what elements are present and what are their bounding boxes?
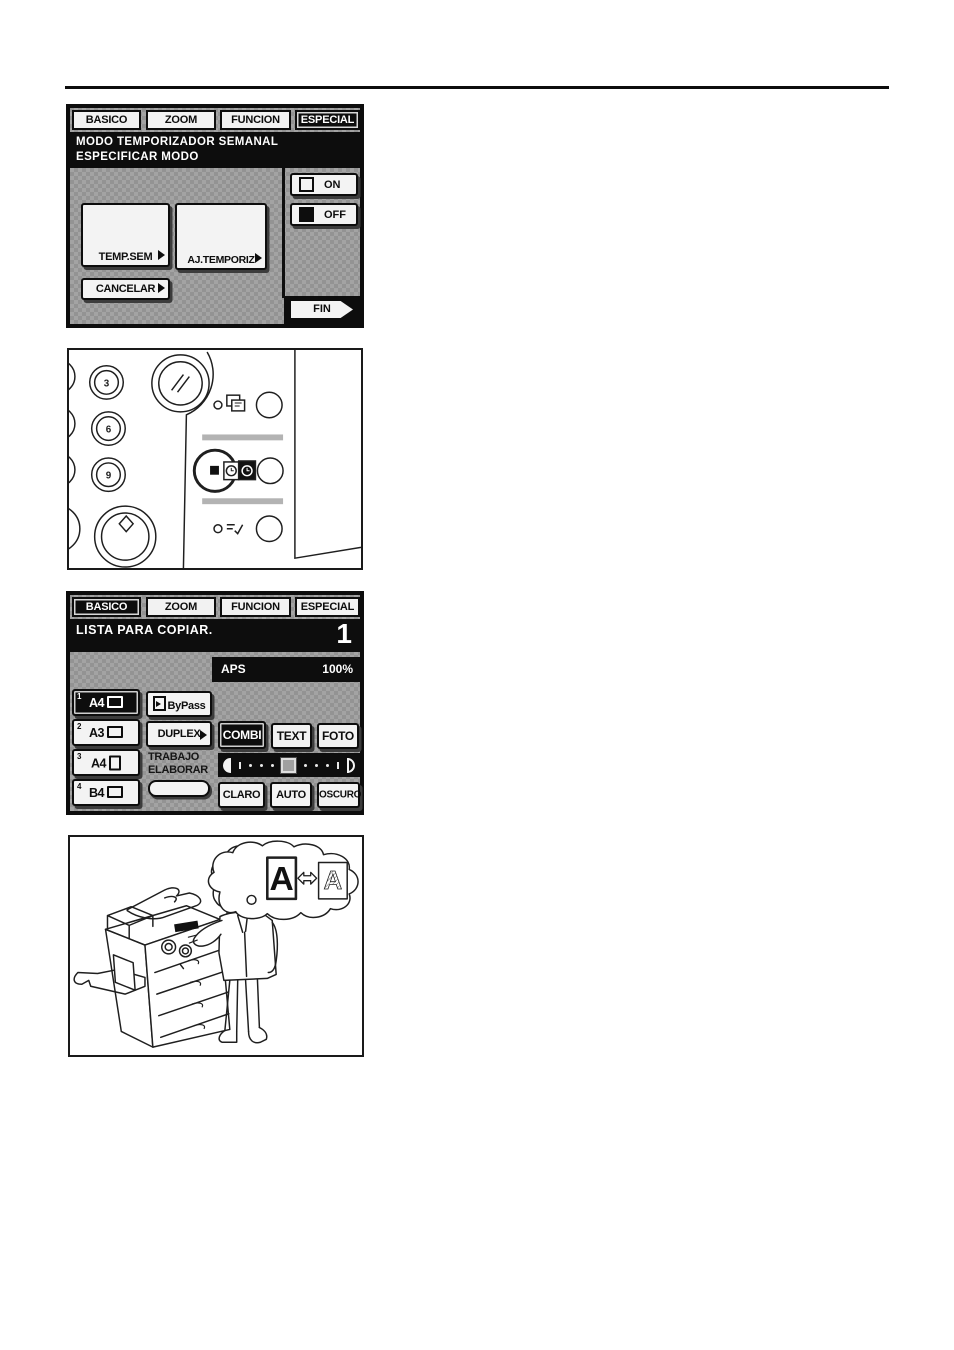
off-label: OFF xyxy=(324,209,346,221)
text-button: TEXT xyxy=(271,723,312,749)
tab-funcion: FUNCION xyxy=(220,597,291,617)
bypass-content: ByPass xyxy=(148,696,210,712)
header-rule xyxy=(65,86,889,89)
arrow-icon xyxy=(158,250,170,260)
arrow-icon xyxy=(158,283,170,293)
paper-portrait-icon xyxy=(109,755,121,770)
foto-label: FOTO xyxy=(319,729,357,743)
trabajo-line2: ELABORAR xyxy=(148,764,214,777)
tab-especial: ESPECIAL xyxy=(295,597,360,617)
message-bar: MODO TEMPORIZADOR SEMANAL ESPECIFICAR MO… xyxy=(70,132,360,168)
interrupt-key xyxy=(256,392,282,418)
bypass-button: ByPass xyxy=(146,691,212,717)
start-key xyxy=(95,506,156,567)
copy-count: 1 xyxy=(336,618,352,650)
figure-lcd-copy-screen: BASICO ZOOM FUNCION ESPECIAL LISTA PARA … xyxy=(66,591,364,815)
status-bar: LISTA PARA COPIAR. 1 xyxy=(70,619,360,652)
dot xyxy=(304,764,307,767)
fin-strip: FIN xyxy=(284,296,360,324)
bypass-icon xyxy=(153,696,166,711)
paper-landscape-icon xyxy=(107,726,123,738)
aps-label: APS xyxy=(221,657,246,682)
timer-led-icon xyxy=(210,466,219,475)
dot xyxy=(271,764,274,767)
clear-all-icon xyxy=(172,375,190,393)
energy-saver-icon xyxy=(227,525,243,534)
keypad-digit: 9 xyxy=(106,471,112,482)
tray-button-4: 4 B4 xyxy=(72,779,140,806)
bubble-letter-small: A xyxy=(324,867,343,895)
combi-button: COMBI xyxy=(218,721,266,749)
weekly-timer-icon xyxy=(239,461,256,480)
timer-icon xyxy=(224,462,239,480)
trabajo-slot-button xyxy=(148,780,210,797)
tab-zoom: ZOOM xyxy=(146,110,216,130)
keypad-digit: 6 xyxy=(106,425,112,436)
led-icon xyxy=(214,525,222,533)
checkbox-filled-icon xyxy=(299,207,314,222)
fin-label: FIN xyxy=(291,301,353,318)
paper-landscape-icon xyxy=(107,696,123,708)
zoom-value: 100% xyxy=(322,657,353,682)
arrow-icon xyxy=(255,253,267,263)
tray-button-3: 3 A4 xyxy=(72,749,140,776)
message-line2: ESPECIFICAR MODO xyxy=(76,150,354,165)
weekly-timer-key xyxy=(257,458,283,484)
foto-button: FOTO xyxy=(317,723,359,749)
density-knob xyxy=(281,758,296,773)
dot xyxy=(260,764,263,767)
off-button: OFF xyxy=(290,203,358,226)
tray-size: A3 xyxy=(74,726,138,740)
led-icon xyxy=(214,401,222,409)
combi-label: COMBI xyxy=(220,728,264,742)
tray-size: A4 xyxy=(74,696,138,710)
tab-zoom: ZOOM xyxy=(146,597,216,617)
aj-temporiz-label: AJ.TEMPORIZ xyxy=(177,254,265,266)
figure-copier-illustration: A A xyxy=(68,835,364,1057)
light-half-circle-icon xyxy=(223,758,231,773)
arrow-icon xyxy=(200,730,212,740)
energy-saver-key xyxy=(256,516,282,542)
on-button: ON xyxy=(290,173,358,196)
oscuro-button: OSCURO xyxy=(317,782,360,808)
message-line1: MODO TEMPORIZADOR SEMANAL xyxy=(76,135,354,150)
dot xyxy=(326,764,329,767)
auto-label: AUTO xyxy=(272,789,310,801)
claro-button: CLARO xyxy=(218,782,265,808)
tick xyxy=(239,762,241,769)
copier-illustration-drawing: A A xyxy=(70,837,362,1055)
text-label: TEXT xyxy=(273,729,310,743)
panel-divider xyxy=(282,168,285,298)
control-panel-drawing: 3 6 9 xyxy=(69,350,361,568)
tray-button-1: 1 A4 xyxy=(72,689,140,716)
on-label: ON xyxy=(324,179,341,191)
tab-basico: BASICO xyxy=(72,110,141,130)
trabajo-label: TRABAJO ELABORAR xyxy=(148,751,214,777)
interrupt-icon xyxy=(227,395,245,411)
tab-funcion: FUNCION xyxy=(220,110,291,130)
dark-half-circle-icon xyxy=(347,758,355,773)
temp-sem-label: TEMP.SEM xyxy=(83,251,168,263)
tray-size: B4 xyxy=(74,786,138,800)
figure-lcd-weekly-timer: BASICO ZOOM FUNCION ESPECIAL MODO TEMPOR… xyxy=(66,104,364,328)
status-text: LISTA PARA COPIAR. xyxy=(76,623,213,637)
paper-landscape-icon xyxy=(107,786,123,798)
claro-label: CLARO xyxy=(220,789,263,801)
cancelar-button: CANCELAR xyxy=(81,278,170,300)
auto-button: AUTO xyxy=(270,782,312,808)
start-icon xyxy=(119,516,133,532)
density-slider xyxy=(218,753,360,777)
trabajo-line1: TRABAJO xyxy=(148,751,214,764)
bubble-letter-large: A xyxy=(269,861,293,898)
clear-all-key xyxy=(152,355,209,412)
dot xyxy=(249,764,252,767)
temp-sem-button: TEMP.SEM xyxy=(81,203,170,267)
duplex-button: DUPLEX xyxy=(146,721,212,747)
tray-button-2: 2 A3 xyxy=(72,719,140,746)
tick xyxy=(337,762,339,769)
copier-drawing xyxy=(74,888,230,1047)
tab-especial: ESPECIAL xyxy=(295,110,360,130)
aj-temporiz-button: AJ.TEMPORIZ xyxy=(175,203,267,270)
tray-size: A4 xyxy=(74,755,138,770)
aps-bar: APS 100% xyxy=(212,657,360,682)
figure-control-panel: 3 6 9 xyxy=(67,348,363,570)
oscuro-label: OSCURO xyxy=(319,790,358,801)
manual-page: BASICO ZOOM FUNCION ESPECIAL MODO TEMPOR… xyxy=(0,0,954,1350)
cancelar-label: CANCELAR xyxy=(83,283,168,295)
fin-button: FIN xyxy=(289,299,355,320)
tab-basico: BASICO xyxy=(72,597,141,617)
checkbox-empty-icon xyxy=(299,177,314,192)
dot xyxy=(315,764,318,767)
keypad-digit: 3 xyxy=(104,378,110,389)
